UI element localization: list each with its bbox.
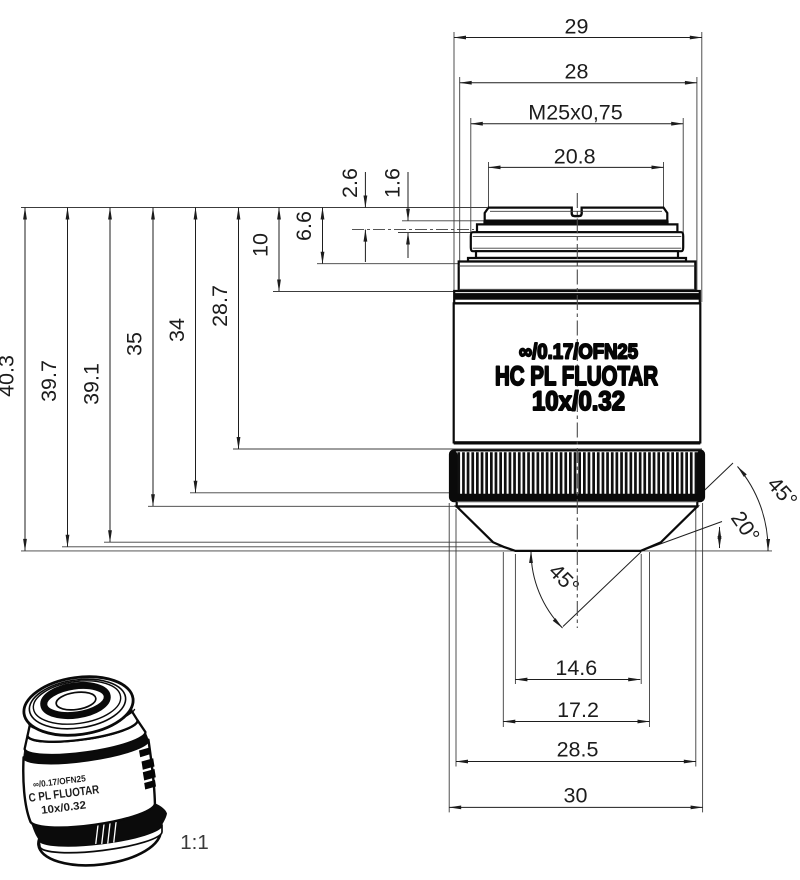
svg-text:1:1: 1:1 (180, 831, 209, 854)
svg-text:28.5: 28.5 (557, 738, 599, 762)
svg-text:30: 30 (564, 784, 588, 808)
svg-text:29: 29 (565, 15, 589, 39)
svg-text:35: 35 (123, 332, 147, 356)
svg-text:40.3: 40.3 (0, 355, 19, 397)
svg-text:1.6: 1.6 (381, 168, 405, 198)
svg-text:28: 28 (565, 60, 589, 84)
svg-text:39.1: 39.1 (80, 363, 104, 405)
svg-text:M25x0,75: M25x0,75 (528, 101, 622, 125)
svg-text:34: 34 (165, 318, 189, 342)
svg-text:10: 10 (249, 233, 273, 257)
svg-text:14.6: 14.6 (555, 656, 597, 680)
svg-text:17.2: 17.2 (557, 698, 599, 722)
svg-text:2.6: 2.6 (338, 168, 362, 198)
svg-text:6.6: 6.6 (292, 211, 316, 241)
svg-text:20.8: 20.8 (554, 144, 596, 168)
svg-text:28.7: 28.7 (208, 285, 232, 327)
svg-text:39.7: 39.7 (37, 360, 61, 402)
svg-text:10x/0.32: 10x/0.32 (532, 386, 625, 416)
